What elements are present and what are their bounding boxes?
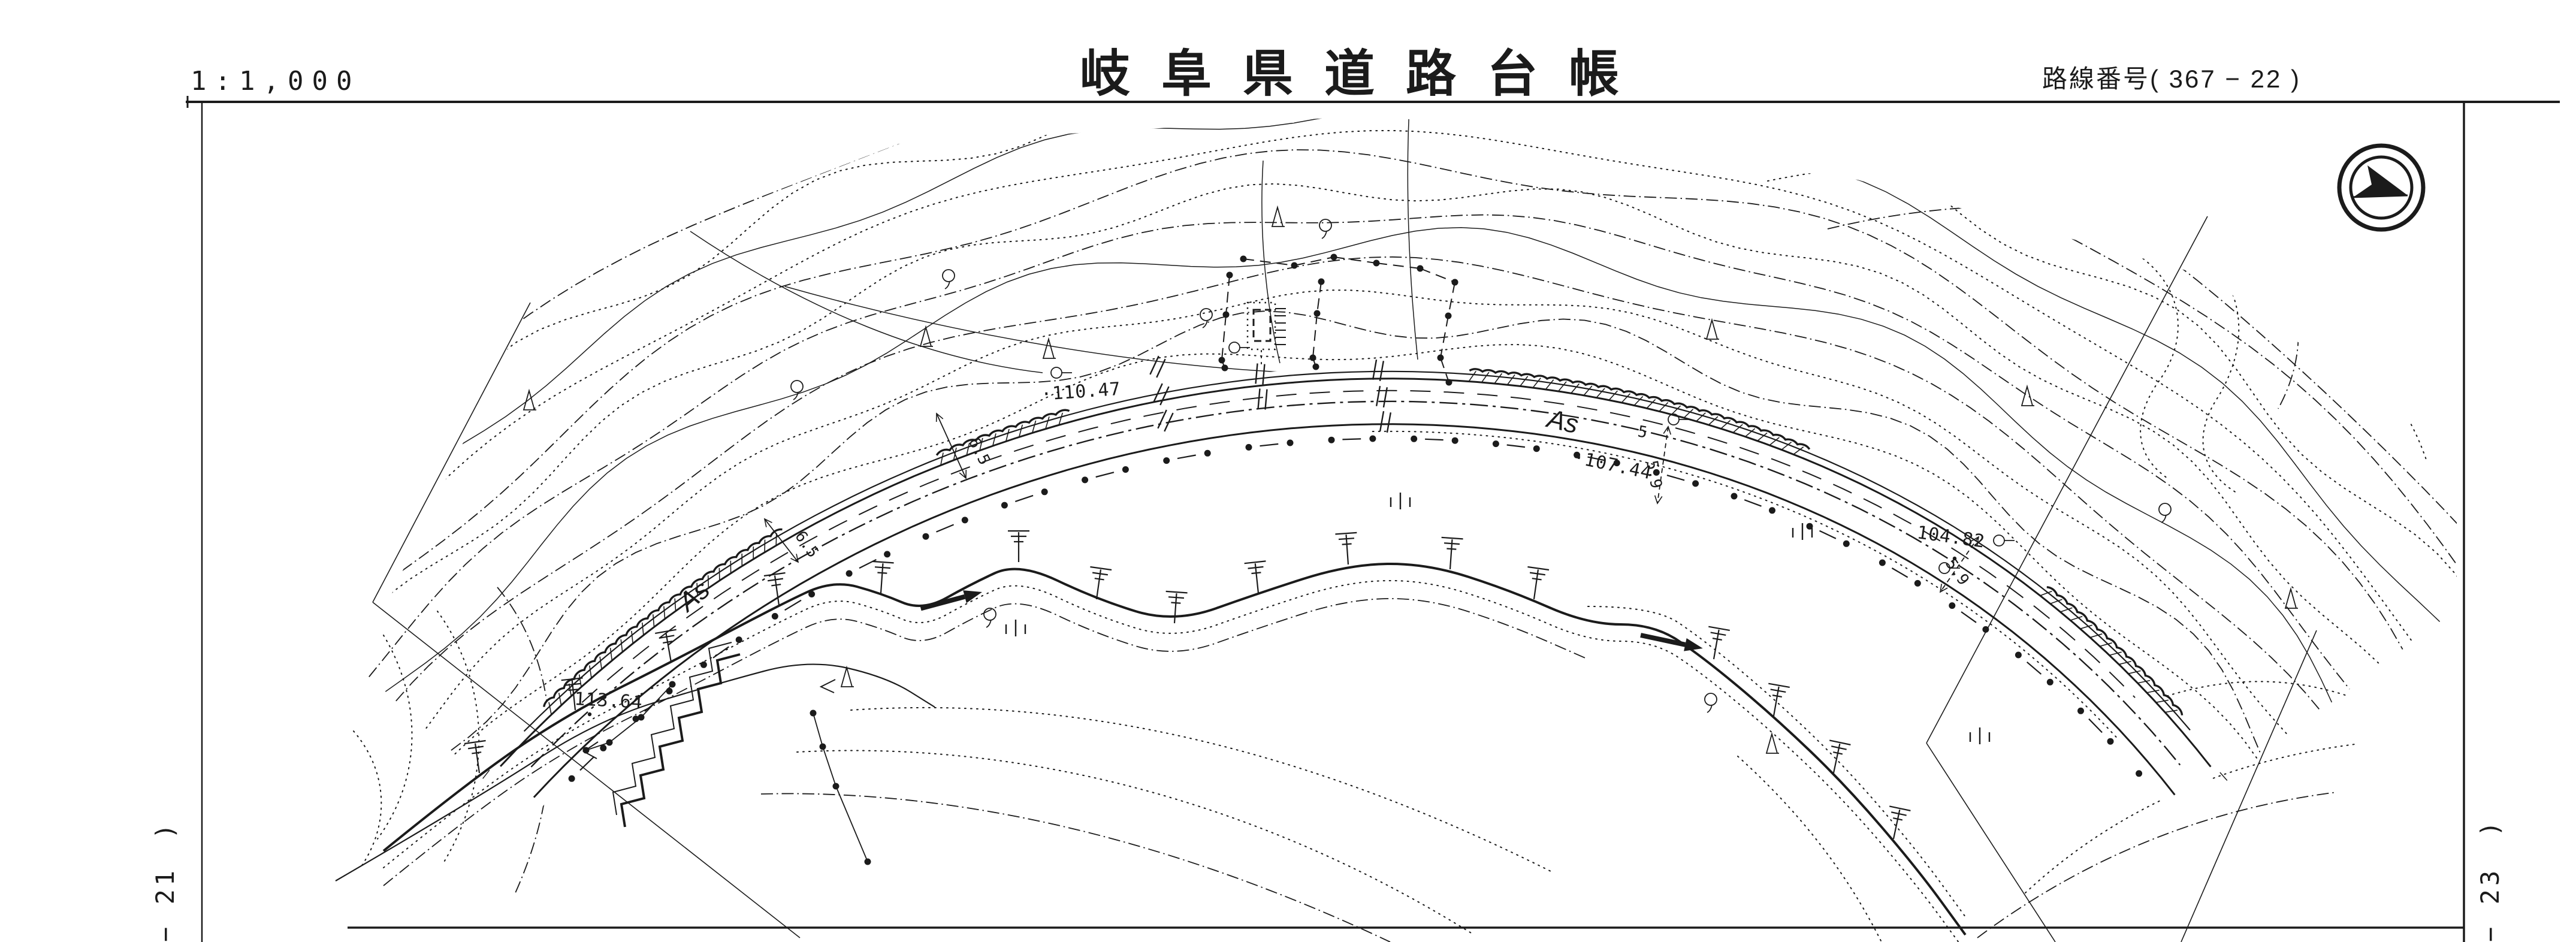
map-line [1008,531,1029,562]
contour-line [797,751,1474,935]
paddy-field-icon [1970,727,1989,744]
tree-row-icon [1439,538,1463,570]
boundary-dot [772,613,778,620]
contour-line [2242,229,2299,409]
parcel-dot [1310,355,1316,361]
boundary-dot [736,636,742,643]
boundary-dot [2107,738,2114,745]
boundary-dot [1369,436,1376,442]
map-line [793,392,798,400]
tree-row-icon [1523,567,1549,601]
conifer-tree-icon [2285,589,2298,608]
broadleaf-tree-icon [2159,503,2171,523]
map-line [1245,561,1269,594]
conifer-tree-icon [1272,207,1285,227]
map-line [1164,591,1188,624]
boundary-dot [2015,652,2022,659]
map-canvas: As As ·110.47 ·107.44 104.82 113.64 6.5 … [0,0,2576,942]
contour-line [2133,252,2178,479]
map-line [2022,387,2034,406]
map-line [1883,806,1910,841]
parcel-dot [1445,313,1452,319]
embankment-tick [719,568,720,581]
plot-boundary-diagonal [373,602,800,938]
contour-line [851,708,1552,872]
map-line [1766,734,1779,753]
boundary-dot [1533,445,1540,452]
contour-line [1768,161,2157,199]
parcel-line [813,713,823,747]
boundary-dot [1731,493,1738,500]
tree-row-icon [870,561,894,594]
map-line [1523,567,1549,601]
boundary-dot [1411,436,1417,442]
contour-line [227,28,2503,575]
map-line [841,668,854,687]
parcel-dot [1452,279,1458,286]
parcel-dot [606,739,613,746]
tree-row-icon [1823,740,1850,775]
contour-lines [132,0,2576,942]
tree-row-icon [1335,533,1359,565]
boundary-dot [1914,580,1921,587]
parcel-dot [1446,379,1452,386]
scale-label: 1:1,000 [191,66,360,96]
tree-row-icon [1164,591,1188,624]
tree-row-icon [1703,627,1729,661]
map-line [2161,515,2166,523]
boundary-dash [1507,445,1525,448]
north-arrow-icon [2339,146,2423,230]
parcel-dot [669,681,676,688]
plot-boundary-diagonal [1926,743,2055,942]
map-line [945,281,950,289]
conifer-tree-icon [524,391,536,410]
boundary-dot [1769,507,1775,514]
parcel-dot [1331,254,1337,261]
parcel-line [1222,315,1226,360]
utility-pole-icon [1229,342,1250,353]
boundary-dot [1452,437,1458,444]
building-outline [1254,310,1270,341]
map-line [1043,339,1056,358]
boundary-dash [1260,444,1279,446]
map-symbols [524,207,2298,753]
map-line [1970,727,1989,744]
boundary-dot [666,688,673,695]
contour-line [354,731,381,869]
boundary-dot [923,533,929,540]
parcel-dot [638,714,645,721]
parcel-dot [1240,256,1247,262]
map-line [870,561,894,594]
contour-line [785,286,1294,373]
stream-bank-dotted [383,581,1965,942]
boundary-dot [700,662,707,668]
sheet-frame: 1:1,000 岐阜県道路台帳 路線番号( 367 − 22 ) − 21 ) … [150,46,2560,942]
boundary-dot [884,551,890,557]
boundary-dot [1949,602,1955,609]
parcel-dot [1373,260,1380,267]
boundary-dot [1001,502,1008,509]
parcel-line [823,747,836,786]
paddy-field-icon [1391,493,1410,509]
contour-line [761,793,1390,942]
embankment-tick [708,575,709,588]
parcel-dot [865,859,871,865]
sheet-ref-left-number: − 21 [150,867,180,942]
parcel-dot [1223,312,1230,318]
sheet-ref-right-number: − 23 [2475,867,2505,942]
stream-bank-dotted-upper [1588,606,1965,917]
broadleaf-tree-icon [1705,693,1717,712]
map-line [1707,320,1719,339]
tree-row-icon [1008,531,1029,562]
parcel-dot [1222,365,1228,372]
road-ledger-sheet: As As ·110.47 ·107.44 104.82 113.64 6.5 … [0,0,2576,942]
plot-boundary-diagonal [373,303,530,602]
paddy-field-icon [1006,620,1025,636]
utility-pole-icon [1994,535,2015,546]
conifer-tree-icon [1707,320,1719,339]
boundary-dot [1246,444,1252,451]
tree-row-icon [1245,561,1269,594]
parcel-dot [820,744,826,750]
contour-line [378,635,412,839]
boundary-dot [1204,450,1211,457]
map-line [1439,538,1463,570]
boundary-dot [1163,457,1170,464]
boundary-dot [2136,770,2142,777]
parcel-line [1317,282,1321,313]
conifer-tree-icon [841,668,854,687]
flow-arrow-icon [919,585,984,615]
sheet-ref-right: − 23 ) [2475,818,2505,942]
map-line [524,391,536,410]
tree-row-icon [1883,806,1910,841]
page-title: 岐阜県道路台帳 [1080,46,1650,102]
boundary-dot [1328,437,1335,443]
contour-line [1977,792,2337,938]
map-line [2285,589,2298,608]
parcel-dot [1318,279,1325,285]
map-line [1391,493,1410,509]
contour-line [285,100,2440,621]
culvert-ticks [1150,356,1165,378]
boundary-dot [569,775,575,782]
contour-line [426,290,2288,735]
parcel-dot [1313,364,1319,370]
broadleaf-tree-icon [943,270,955,289]
map-line [1006,620,1025,636]
contour-line [2325,336,2427,461]
conifer-tree-icon [1766,734,1779,753]
boundary-dot [2047,679,2053,686]
parcel-dot [1219,357,1225,364]
parcel-line [1226,275,1230,315]
sheet-ref-left-paren: ) [150,820,180,839]
broadleaf-tree-icon [984,608,996,627]
route-number-label: 路線番号( 367 − 22 ) [2042,65,2301,93]
boundary-dot [1692,480,1699,487]
boundary-dot [1082,476,1088,483]
parcel-dot [1417,265,1424,272]
contour-line [1408,107,1418,360]
spot-elevation-11364: 113.64 [574,689,644,713]
contour-line [255,72,2471,598]
contour-line [2188,240,2239,493]
boundary-dot [1122,466,1129,473]
parcel-dot [1227,272,1233,279]
map-line [1707,705,1712,712]
map-line [1335,533,1359,565]
parcel-line [1313,313,1317,358]
sheet-ref-right-paren: ) [2475,818,2505,837]
utility-pole-icon [1051,367,1072,378]
road-surface-mask [510,401,2198,790]
broadleaf-tree-icon [791,381,803,400]
boundary-dot [1843,541,1850,547]
boundary-dash [1425,439,1443,440]
parcel-line [1376,263,1420,268]
parcel-line [1448,282,1455,316]
parcel-dot [833,783,839,790]
map-line [986,620,991,627]
boundary-dot [846,570,853,577]
boundary-dot [1879,560,1886,566]
boundary-dot [1493,440,1499,447]
parcel-dot [810,710,817,717]
map-line [1703,627,1729,661]
conifer-tree-icon [1043,339,1056,358]
boundary-dash [1342,439,1361,439]
conifer-tree-icon [2022,387,2034,406]
sheet-ref-left: − 21 ) [150,820,180,942]
parcel-line [1243,259,1294,265]
boundary-dot [1041,488,1048,495]
contour-line [250,61,2478,593]
parcel-dot [1438,355,1444,361]
spot-height-dot [588,712,591,716]
boundary-dot [2077,708,2084,714]
map-line [1272,207,1285,227]
parcel-dot [1314,310,1321,317]
map-line [1823,740,1850,775]
parcel-dot [1291,262,1298,269]
parcel-line [1420,268,1455,282]
boundary-dot [962,517,968,523]
chain-arrowhead [821,680,835,693]
parcel-line [836,786,868,862]
road-band [500,356,2210,827]
map-line [1322,231,1327,238]
boundary-dot [1287,440,1294,446]
